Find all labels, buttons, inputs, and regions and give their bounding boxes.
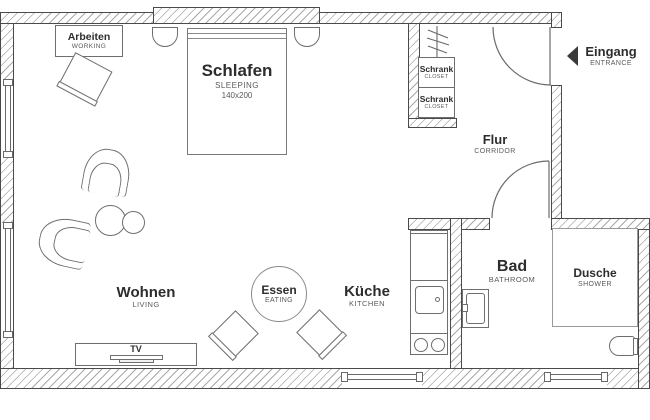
side-table-small (122, 211, 145, 234)
dining-table: Essen EATING (251, 266, 307, 322)
tv-stand (119, 359, 154, 363)
tv-cabinet: TV (75, 343, 197, 366)
desk: Arbeiten WORKING (55, 25, 123, 57)
room-label-bathroom: Bad BATHROOM (489, 258, 535, 285)
bed: Schlafen SLEEPING 140x200 (187, 28, 287, 155)
room-label-shower: Dusche SHOWER (553, 229, 637, 326)
room-label-sleeping: Schlafen SLEEPING 140x200 (188, 61, 286, 101)
closet-1: Schrank CLOSET (418, 57, 455, 88)
closet-2: Schrank CLOSET (418, 87, 455, 118)
washbasin (462, 289, 489, 328)
entrance-arrow-icon (567, 46, 578, 66)
kitchen-faucet (435, 297, 440, 302)
room-label-eating: Essen EATING (252, 267, 306, 321)
shower-tray: Dusche SHOWER (552, 228, 638, 327)
floorplan: Arbeiten WORKING Schlafen SLEEPING 140x2… (0, 0, 650, 420)
counter-divider (411, 333, 447, 334)
closet-1-label: Schrank CLOSET (419, 58, 454, 87)
closet-2-label: Schrank CLOSET (419, 88, 454, 117)
room-label-living: Wohnen LIVING (117, 284, 176, 310)
room-label-working: Arbeiten WORKING (56, 26, 122, 56)
kitchen-counter (410, 230, 448, 355)
room-label-corridor: Flur CORRIDOR (474, 133, 515, 156)
coat-rack-icon (427, 26, 449, 57)
room-label-kitchen: Küche KITCHEN (344, 283, 390, 309)
bathroom-door (492, 161, 549, 218)
entrance-label: Eingang ENTRANCE (585, 45, 636, 68)
toilet-cistern (633, 338, 638, 355)
counter-edge (411, 233, 447, 234)
armchair-seat (87, 160, 125, 197)
stove-burner-right (431, 338, 445, 352)
counter-divider (411, 280, 447, 281)
armchair-seat (51, 223, 91, 263)
tv-label: TV (76, 344, 196, 354)
bed-pillow-line (188, 33, 286, 39)
washbasin-bowl (466, 293, 485, 324)
bed-size: 140x200 (222, 91, 253, 101)
entrance-door (493, 27, 551, 85)
washbasin-faucet (462, 304, 468, 312)
toilet (609, 336, 635, 356)
stove-burner-left (414, 338, 428, 352)
